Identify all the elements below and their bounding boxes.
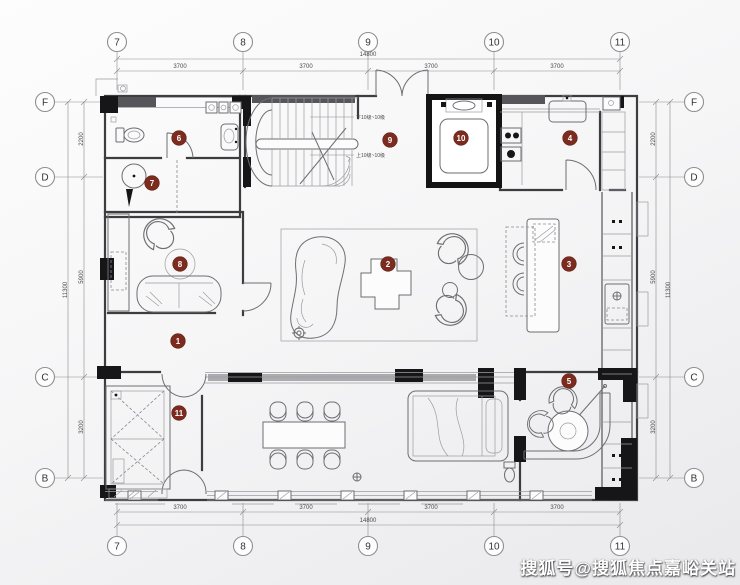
grid-label: 10	[488, 38, 500, 49]
dim-total-left: 11300	[63, 281, 69, 298]
vanity-sink-icon	[221, 124, 238, 150]
marker-number: 3	[567, 260, 572, 269]
grid-bubble-top-8: 8	[234, 33, 253, 52]
loveseat-icon	[137, 276, 221, 312]
dining-chair-icon	[270, 450, 286, 469]
grid-label: B	[691, 474, 698, 485]
grid-label: 9	[365, 38, 371, 49]
dining-chair-icon	[324, 450, 340, 469]
lounge-chair-icon	[428, 287, 473, 332]
grid-bubble-left-C: C	[36, 368, 55, 387]
dining-chair-icon	[297, 402, 313, 421]
grid-bubble-top-11: 11	[611, 33, 630, 52]
grid-bubble-right-F: F	[685, 93, 704, 112]
grid-label: 10	[488, 542, 500, 553]
grid-bubble-bottom-9: 9	[359, 537, 378, 556]
grid-bubble-bottom-7: 7	[108, 537, 127, 556]
dim-seg-top-1: 3700	[173, 64, 187, 70]
grid-bubble-top-9: 9	[359, 33, 378, 52]
marker-number: 7	[150, 179, 155, 188]
kitchen-sink-icon	[549, 95, 586, 122]
dim-seg-bottom-1: 3700	[173, 505, 187, 511]
dining-chair-icon	[324, 402, 340, 421]
marker-number: 4	[568, 134, 573, 143]
grid-bubble-bottom-8: 8	[234, 537, 253, 556]
plant-icon	[353, 473, 361, 481]
side-table-icon	[459, 255, 484, 280]
dim-total-bottom: 14800	[360, 518, 377, 524]
toilet-icon	[504, 462, 515, 482]
study-room	[108, 212, 221, 312]
grid-bubble-right-C: C	[685, 368, 704, 387]
living-room	[281, 227, 484, 341]
grid-label: D	[690, 173, 697, 184]
room-marker-11: 11	[172, 406, 187, 421]
marker-number: 10	[457, 134, 466, 143]
grid-label: D	[41, 173, 48, 184]
marker-number: 2	[386, 260, 391, 269]
grid-bubble-bottom-11: 11	[611, 537, 630, 556]
grid-bubble-bottom-10: 10	[485, 537, 504, 556]
side-table-icon	[443, 283, 458, 298]
grid-label: 11	[615, 542, 626, 553]
grid-bubble-right-D: D	[685, 168, 704, 187]
grid-bubble-left-D: D	[36, 168, 55, 187]
bar-stool-icon	[513, 243, 524, 265]
stair-note-upper: 下10级~10级	[356, 114, 385, 121]
floor-plan-page: 14800 3700 3700 3700 3700 14800 3700 370…	[0, 0, 740, 585]
terrace-lower-double-door	[162, 470, 206, 494]
room-marker-3: 3	[562, 257, 577, 272]
dim-seg-top-4: 3700	[550, 64, 564, 70]
marker-number: 1	[176, 337, 181, 346]
grid-label: F	[691, 98, 697, 109]
grid-label: C	[41, 373, 48, 384]
dim-total-top: 14800	[360, 52, 377, 58]
grid-bubble-right-B: B	[685, 469, 704, 488]
grid-label: 11	[615, 38, 626, 49]
kitchen-island	[506, 219, 559, 332]
grid-bubble-left-B: B	[36, 469, 55, 488]
entry-double-door	[376, 70, 428, 96]
laundry-appliances	[206, 102, 241, 113]
room-marker-4: 4	[563, 131, 578, 146]
dining-chair-icon	[270, 402, 286, 421]
terrace	[106, 386, 170, 498]
grid-bubble-top-7: 7	[108, 33, 127, 52]
armchair-icon	[137, 212, 182, 257]
dim-seg-top-2: 3700	[299, 64, 313, 70]
dim-seg-left-1: 2200	[79, 132, 85, 146]
marker-number: 6	[177, 134, 182, 143]
marker-number: 9	[388, 136, 393, 145]
grid-label: 8	[240, 38, 246, 49]
grid-label: 7	[114, 542, 120, 553]
watermark: 搜狐号@搜狐焦点嘉峪关站	[520, 554, 736, 579]
dim-seg-top-3: 3700	[424, 64, 438, 70]
lounge-chair-icon	[430, 227, 475, 272]
dim-seg-right-3: 3200	[651, 420, 657, 434]
grid-label: F	[42, 98, 48, 109]
dining-area	[263, 391, 508, 481]
dim-seg-bottom-4: 3700	[550, 505, 564, 511]
room-marker-5: 5	[562, 374, 577, 389]
dim-total-right: 11300	[666, 281, 672, 298]
grid-bubble-left-F: F	[36, 93, 55, 112]
room-marker-7: 7	[145, 176, 160, 191]
grid-label: 9	[365, 542, 371, 553]
dim-seg-left-3: 3200	[79, 420, 85, 434]
room-marker-10: 10	[454, 131, 469, 146]
grid-label: 8	[240, 542, 246, 553]
storage-cabinet-icon	[106, 386, 170, 489]
floor-plan-drawing: 14800 3700 3700 3700 3700 14800 3700 370…	[0, 0, 740, 585]
dim-seg-right-2: 5900	[651, 270, 657, 284]
dim-seg-bottom-2: 3700	[299, 505, 313, 511]
dim-seg-left-2: 5900	[79, 270, 85, 284]
door-leaf-icon	[126, 189, 133, 207]
marker-number: 8	[178, 260, 183, 269]
marker-number: 5	[567, 377, 572, 386]
study-door	[243, 283, 271, 311]
dim-seg-right-1: 2200	[651, 132, 657, 146]
grid-label: C	[690, 373, 697, 384]
room-marker-9: 9	[383, 133, 398, 148]
room-marker-8: 8	[173, 257, 188, 272]
stair-note-lower: 上10级~10级	[356, 152, 385, 159]
room-marker-6: 6	[172, 131, 187, 146]
daybed-icon	[408, 391, 508, 461]
tea-table-icon	[548, 411, 588, 451]
kitchen-door	[566, 160, 596, 190]
room-marker-2: 2	[381, 257, 396, 272]
staircase: 下10级~10级 上10级~10级	[246, 98, 385, 186]
sofa-icon	[291, 237, 346, 338]
bar-stool-icon	[513, 273, 524, 295]
toilet-icon	[116, 128, 124, 142]
dining-table-icon	[263, 422, 345, 448]
grid-bubble-top-10: 10	[485, 33, 504, 52]
grid-label: 7	[114, 38, 120, 49]
grid-label: B	[42, 474, 49, 485]
dining-chair-icon	[297, 450, 313, 469]
room-marker-1: 1	[171, 334, 186, 349]
marker-number: 11	[175, 409, 184, 418]
dim-seg-bottom-3: 3700	[424, 505, 438, 511]
cooktop-icon	[501, 128, 521, 161]
